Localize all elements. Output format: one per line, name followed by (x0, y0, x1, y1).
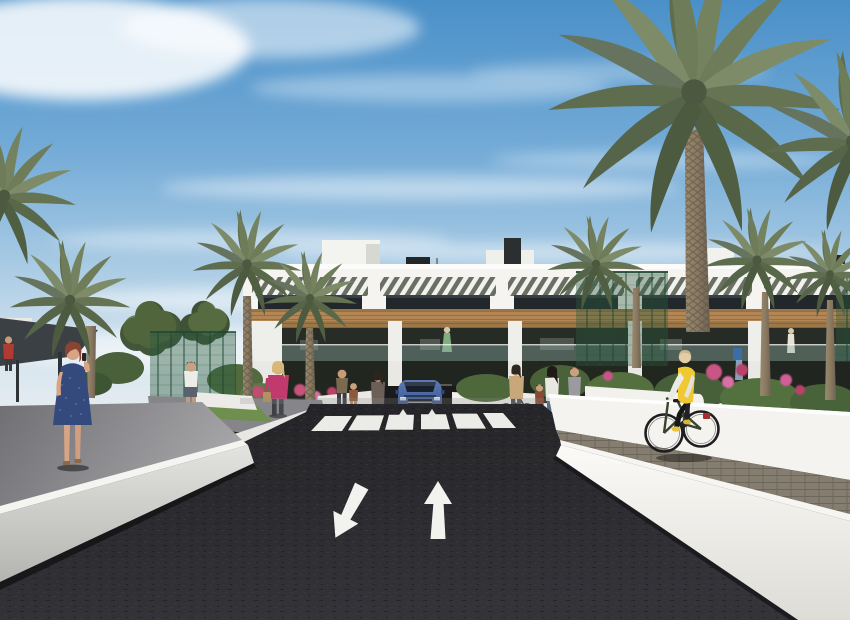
render-canvas: Architectural rendering — street view of… (0, 0, 850, 620)
phone (82, 353, 86, 361)
rear-bag (703, 413, 710, 419)
fence-sign (733, 348, 742, 360)
chimney (504, 238, 521, 264)
architectural-rendering: Architectural rendering — street view of… (0, 0, 850, 620)
shoe (672, 426, 681, 431)
balcony-level (243, 321, 850, 361)
street-shadow-band (240, 398, 550, 404)
